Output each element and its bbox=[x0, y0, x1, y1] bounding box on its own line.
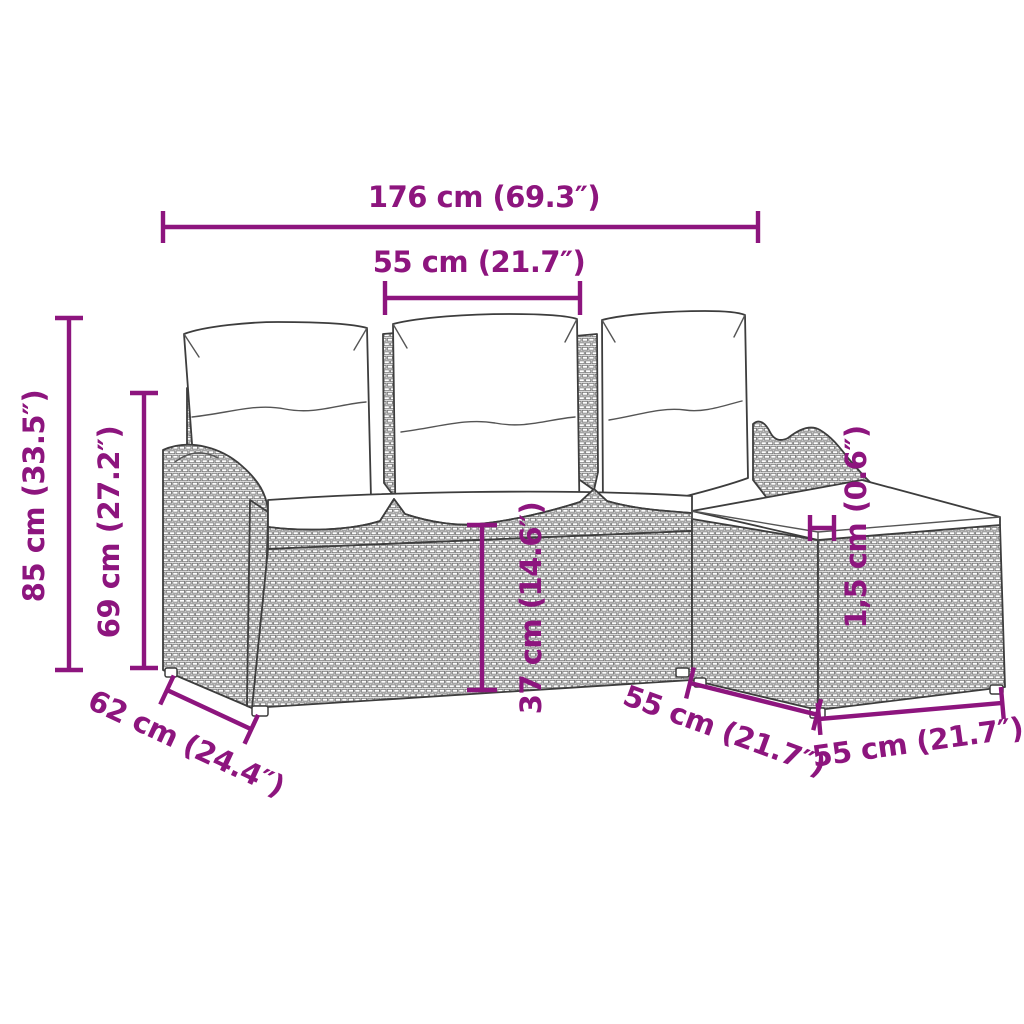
sofa-front-face bbox=[252, 531, 692, 708]
dim-overall-width: 176 cm (69.3″) bbox=[163, 180, 758, 243]
dim-overall-width-label: 176 cm (69.3″) bbox=[368, 180, 600, 214]
dim-seat-width: 55 cm (21.7″) bbox=[373, 245, 585, 315]
footstool-left-face bbox=[692, 519, 818, 710]
sofa-illustration bbox=[163, 311, 1005, 718]
dim-cushion-thickness-label: 1,5 cm (0.6″) bbox=[839, 425, 873, 628]
dimension-diagram: 176 cm (69.3″) 55 cm (21.7″) 85 cm (33.5… bbox=[0, 0, 1024, 1024]
back-cushion-right bbox=[602, 311, 748, 516]
dim-overall-height: 85 cm (33.5″) bbox=[17, 318, 83, 670]
dim-seat-width-label: 55 cm (21.7″) bbox=[373, 245, 585, 279]
dimension-diagram-page: 176 cm (69.3″) 55 cm (21.7″) 85 cm (33.5… bbox=[0, 0, 1024, 1024]
dim-seat-front-height-label: 37 cm (14.6″) bbox=[514, 502, 548, 714]
dim-stool-front-width-label: 55 cm (21.7″) bbox=[810, 710, 1024, 773]
dim-back-height-label: 69 cm (27.2″) bbox=[92, 426, 126, 638]
dim-overall-height-label: 85 cm (33.5″) bbox=[17, 390, 51, 602]
dim-back-height: 69 cm (27.2″) bbox=[92, 393, 158, 668]
left-armrest bbox=[163, 445, 268, 712]
